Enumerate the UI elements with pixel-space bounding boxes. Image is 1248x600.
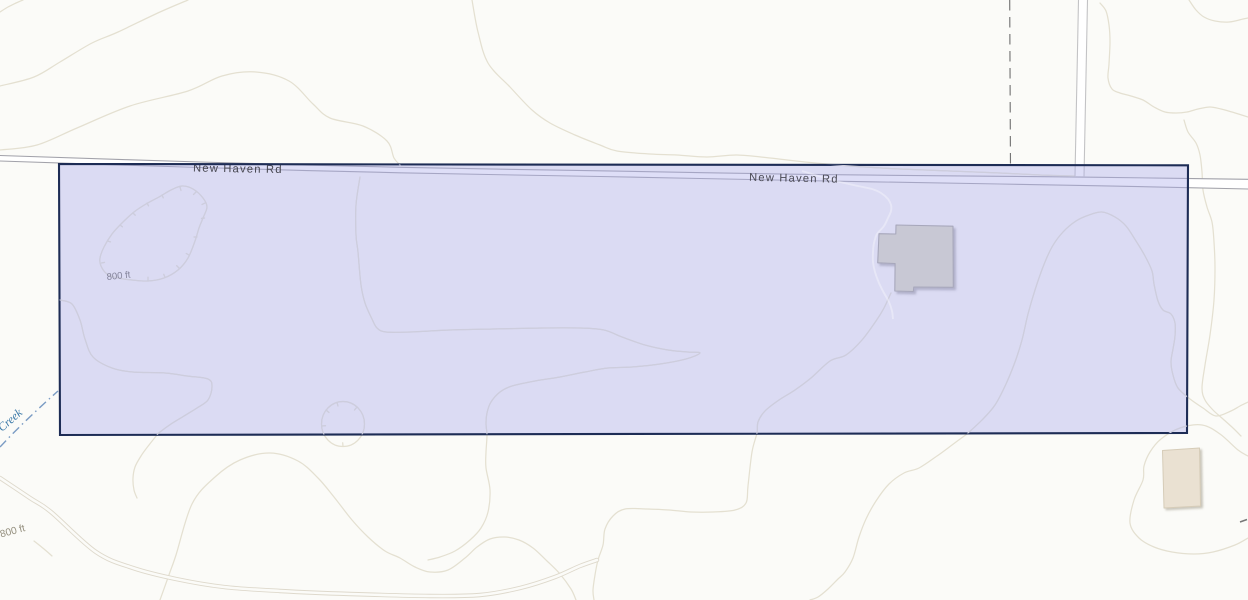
svg-text:New Haven Rd: New Haven Rd [749,172,839,186]
